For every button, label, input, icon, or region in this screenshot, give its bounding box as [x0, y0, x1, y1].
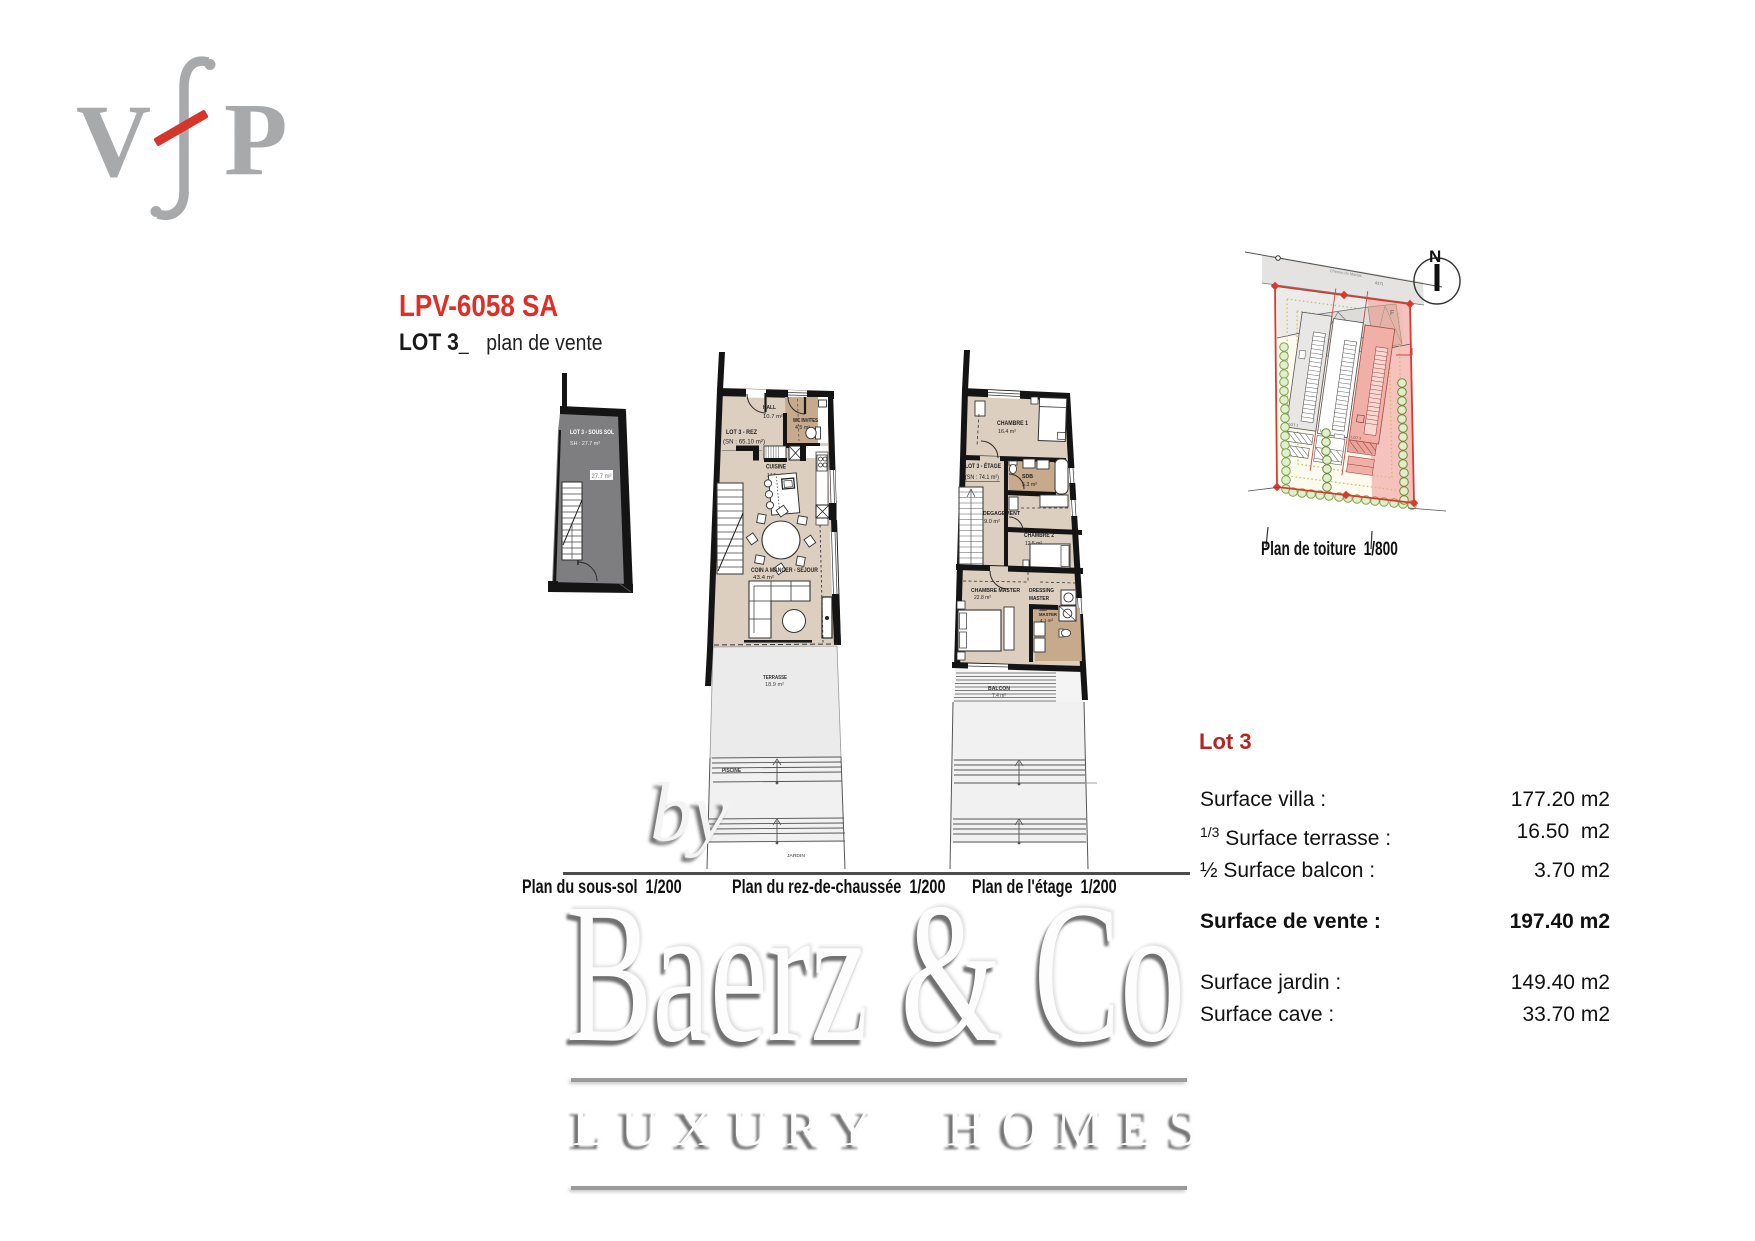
svg-text:DEGAGEMENT: DEGAGEMENT	[983, 511, 1020, 517]
svg-text:DRESSING: DRESSING	[1029, 588, 1054, 594]
svg-text:BALCON: BALCON	[988, 686, 1010, 692]
svg-text:SDB: SDB	[1022, 474, 1033, 480]
svg-text:V: V	[76, 84, 151, 199]
svg-text:10.7 m²: 10.7 m²	[763, 414, 783, 420]
svg-text:18.9 m²: 18.9 m²	[765, 682, 784, 688]
svg-text:16.4 m²: 16.4 m²	[998, 429, 1016, 435]
svg-text:4.5 m²: 4.5 m²	[795, 425, 810, 431]
svg-text:27.7 m²: 27.7 m²	[592, 473, 612, 480]
svg-text:LOT 3 - REZ: LOT 3 - REZ	[726, 429, 757, 436]
svg-text:COIN A MANGER - SEJOUR: COIN A MANGER - SEJOUR	[751, 568, 819, 574]
svg-text:SH : 27.7 m²: SH : 27.7 m²	[570, 441, 600, 447]
svg-text:7.4 m²: 7.4 m²	[992, 693, 1006, 699]
svg-text:5.3 m²: 5.3 m²	[1022, 482, 1037, 488]
svg-text:43.4 m²: 43.4 m²	[753, 575, 774, 581]
svg-text:TERRASSE: TERRASSE	[763, 675, 787, 681]
svg-text:HALL: HALL	[763, 405, 777, 411]
svg-text:JARDIN: JARDIN	[787, 853, 805, 858]
svg-text:9.0 m²: 9.0 m²	[984, 519, 1000, 525]
svg-text:LOT 3 - SOUS SOL: LOT 3 - SOUS SOL	[570, 429, 614, 436]
svg-text:(SN : 74.1 m²): (SN : 74.1 m²)	[965, 475, 999, 481]
svg-text:CHAMBRE MASTER: CHAMBRE MASTER	[971, 588, 1021, 594]
svg-text:CHAMBRE 1: CHAMBRE 1	[997, 421, 1029, 427]
svg-text:F: F	[1390, 310, 1394, 317]
svg-text:N: N	[1429, 247, 1441, 266]
svg-text:CHAMBRE 2: CHAMBRE 2	[1024, 533, 1055, 539]
svg-text:MASTER: MASTER	[1029, 596, 1050, 602]
svg-text:(SN : 65.10 m²): (SN : 65.10 m²)	[723, 440, 765, 446]
svg-text:P: P	[224, 82, 288, 197]
svg-text:CUISINE: CUISINE	[766, 465, 786, 471]
svg-text:22.8 m²: 22.8 m²	[974, 595, 991, 601]
svg-text:WC INVITES: WC INVITES	[793, 418, 819, 424]
svg-text:LOT 3 - ÉTAGE: LOT 3 - ÉTAGE	[965, 462, 1001, 470]
